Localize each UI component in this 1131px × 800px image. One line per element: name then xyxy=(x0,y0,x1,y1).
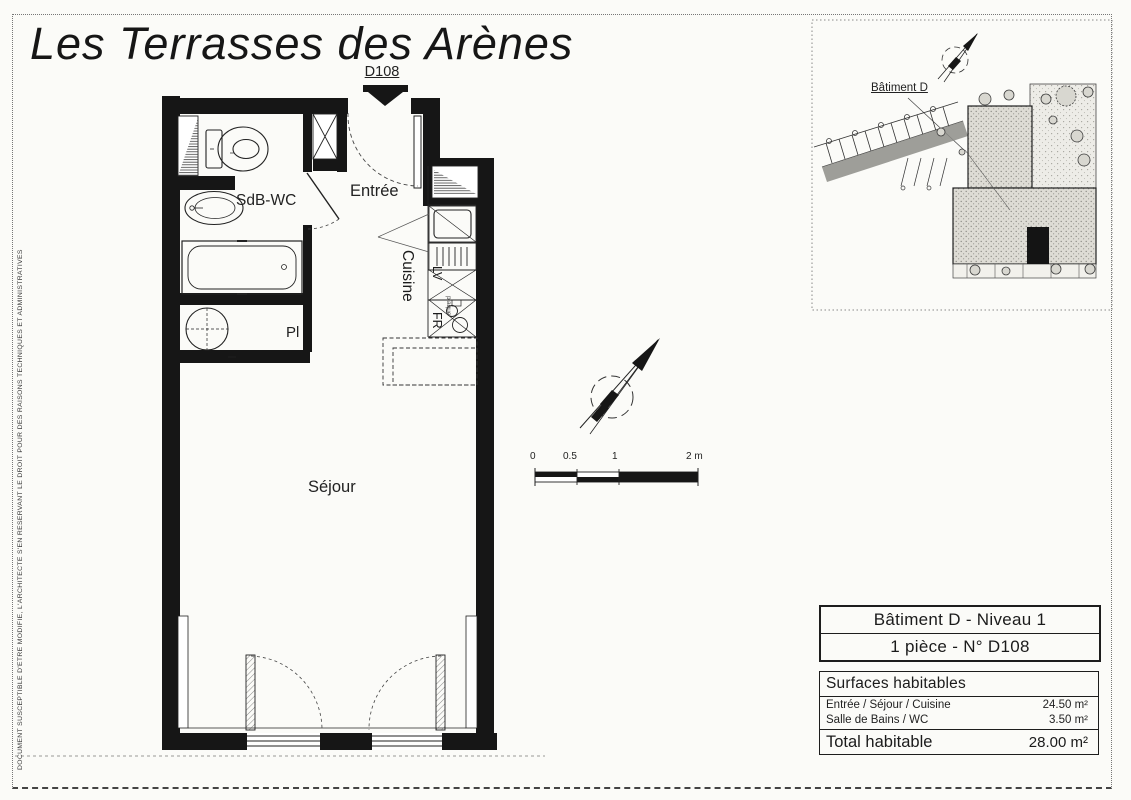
scale-tick-1: 1 xyxy=(612,451,618,462)
site-parking-lower xyxy=(901,158,947,190)
room-label-closet: Pl xyxy=(286,324,299,341)
surface-row-label: Salle de Bains / WC xyxy=(826,714,928,726)
window-reveal-right xyxy=(466,616,477,728)
site-road xyxy=(822,121,968,182)
architect-disclaimer-text: DOCUMENT SUSCEPTIBLE D'ETRE MODIFIE, L'A… xyxy=(17,249,24,770)
bathtub-icon xyxy=(182,241,302,294)
scale-tick-0: 0 xyxy=(530,451,536,462)
scale-bar xyxy=(535,468,698,486)
unit-number-row: 1 pièce - N° D108 xyxy=(821,633,1099,660)
north-compass-icon xyxy=(580,338,660,434)
sink-callout-lines xyxy=(378,214,429,252)
unit-number-label: D108 xyxy=(352,64,412,80)
window-reveal-left xyxy=(178,616,188,728)
french-door-left xyxy=(246,655,322,730)
site-building-label: Bâtiment D xyxy=(871,82,928,94)
site-building-lower xyxy=(953,188,1096,264)
french-door-right xyxy=(369,655,445,730)
surfaces-total-label: Total habitable xyxy=(826,733,932,752)
toilet-icon xyxy=(206,127,268,171)
room-label-living: Séjour xyxy=(308,478,356,497)
bathroom-door xyxy=(307,173,339,229)
surface-row: Salle de Bains / WC 3.50 m² xyxy=(820,712,1098,727)
surfaces-table: Surfaces habitables Entrée / Séjour / Cu… xyxy=(819,671,1099,755)
kitchen-counter-dashed xyxy=(383,338,477,385)
site-building-upper xyxy=(968,106,1032,188)
unit-info-table: Bâtiment D - Niveau 1 1 pièce - N° D108 xyxy=(819,605,1101,662)
site-dark-block xyxy=(1027,227,1049,264)
scale-tick-05: 0.5 xyxy=(563,451,577,462)
room-label-bathroom: SdB-WC xyxy=(236,192,296,210)
surfaces-table-header: Surfaces habitables xyxy=(820,672,1098,697)
entrance-door xyxy=(348,113,421,188)
surface-row: Entrée / Séjour / Cuisine 24.50 m² xyxy=(820,697,1098,712)
washbasin-icon xyxy=(185,192,243,225)
building-level-row: Bâtiment D - Niveau 1 xyxy=(821,607,1099,633)
surfaces-total-value: 28.00 m² xyxy=(1029,734,1088,751)
surface-row-value: 3.50 m² xyxy=(1049,714,1088,726)
site-plan xyxy=(812,20,1112,310)
entrance-closet-crossed xyxy=(313,114,337,159)
kitchen-sink-icon xyxy=(429,206,476,242)
surface-row-value: 24.50 m² xyxy=(1043,699,1088,711)
page-title: Les Terrasses des Arènes xyxy=(30,18,573,70)
unit-entry-arrow-icon xyxy=(363,85,408,106)
scanned-floor-plan-sheet: Les Terrasses des Arènes D108 SdB-WC Ent… xyxy=(0,0,1131,800)
water-heater-icon xyxy=(186,308,236,357)
surfaces-total-row: Total habitable 28.00 m² xyxy=(820,729,1098,754)
room-label-entrance: Entrée xyxy=(350,182,399,201)
architect-disclaimer: DOCUMENT SUSCEPTIBLE D'ETRE MODIFIE, L'A… xyxy=(22,148,36,770)
site-compass-icon xyxy=(938,33,978,82)
scale-tick-2m: 2 m xyxy=(686,451,703,462)
surface-row-label: Entrée / Séjour / Cuisine xyxy=(826,699,951,711)
